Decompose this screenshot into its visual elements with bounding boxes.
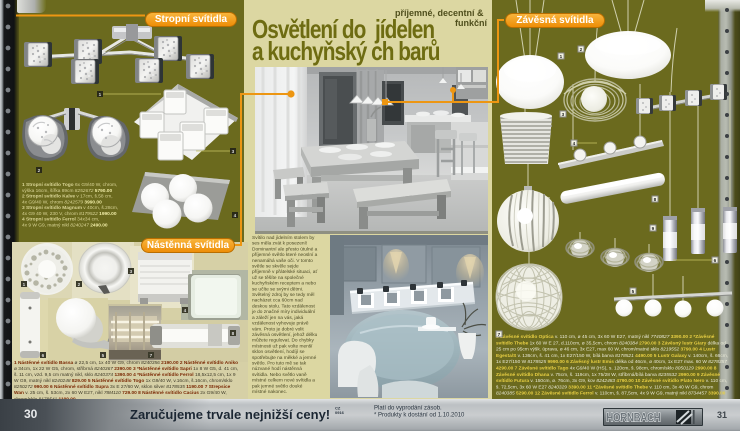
svg-text:2: 2 — [38, 168, 41, 173]
svg-text:1: 1 — [99, 92, 102, 97]
svg-text:7: 7 — [150, 353, 153, 358]
svg-text:8: 8 — [654, 197, 657, 202]
svg-text:HORNBACH: HORNBACH — [606, 412, 661, 425]
svg-text:4: 4 — [573, 141, 576, 146]
svg-text:2: 2 — [78, 282, 81, 287]
svg-text:1: 1 — [560, 54, 563, 59]
svg-text:7: 7 — [498, 332, 501, 337]
svg-text:6: 6 — [42, 353, 45, 358]
svg-text:4: 4 — [234, 213, 237, 218]
svg-text:3: 3 — [130, 269, 133, 274]
svg-text:1: 1 — [23, 282, 26, 287]
svg-text:3: 3 — [562, 112, 565, 117]
svg-text:8: 8 — [232, 331, 235, 336]
svg-text:3: 3 — [232, 149, 235, 154]
svg-text:5: 5 — [632, 289, 635, 294]
svg-text:9: 9 — [652, 226, 655, 231]
svg-text:5: 5 — [102, 353, 105, 358]
svg-text:2: 2 — [580, 47, 583, 52]
svg-text:4: 4 — [184, 308, 187, 313]
svg-text:6: 6 — [714, 258, 717, 263]
